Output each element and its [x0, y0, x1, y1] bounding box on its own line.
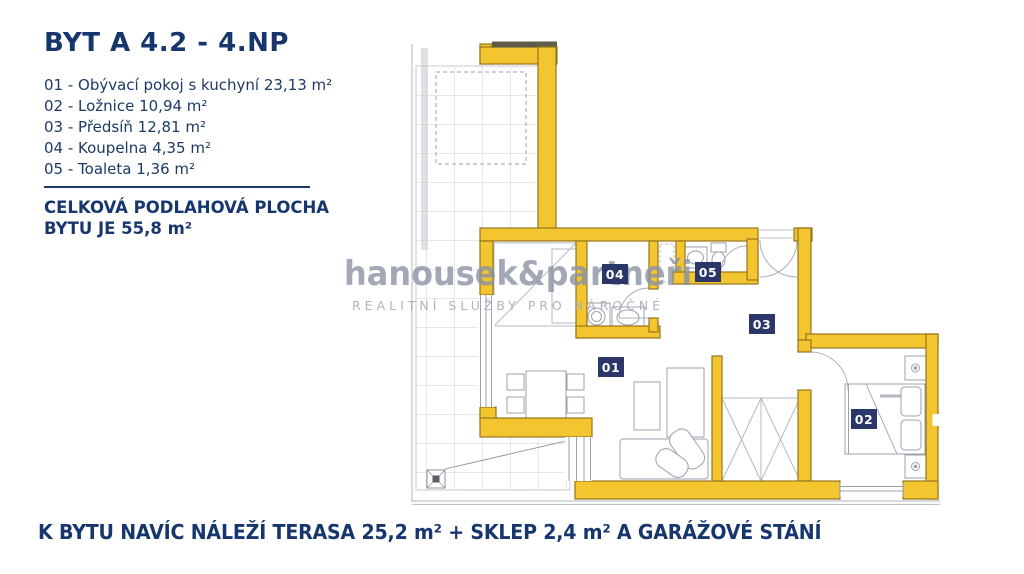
- legend-item-living-room: 01 - Obývací pokoj s kuchyní 23,13 m²: [44, 75, 332, 96]
- total-area-line1: CELKOVÁ PODLAHOVÁ PLOCHA: [44, 197, 329, 218]
- wall-notch: [933, 414, 940, 426]
- total-area-text: CELKOVÁ PODLAHOVÁ PLOCHA BYTU JE 55,8 m²: [44, 197, 329, 239]
- wall-hall-bedroom: [806, 334, 938, 348]
- floor-plan: [405, 38, 950, 505]
- wardrobe: [722, 398, 800, 481]
- entry-door-arc2: [760, 240, 797, 277]
- kitchen-block: [494, 243, 576, 326]
- dining-set: [507, 371, 584, 423]
- entry-door-arc: [760, 240, 797, 277]
- wall-bath-east-bottom: [649, 318, 658, 332]
- entry-door-frame: [758, 230, 794, 238]
- nightstand-top: [905, 356, 926, 380]
- window-french-door: [565, 437, 592, 481]
- window-west: [478, 295, 495, 407]
- wall-toilet-east: [747, 239, 758, 280]
- tv-cabinet: [634, 382, 660, 430]
- bedroom-door-arc: [810, 352, 848, 390]
- room-badge-01: 01: [598, 357, 624, 377]
- page-title: BYT A 4.2 - 4.NP: [44, 28, 289, 58]
- total-area-line2: BYTU JE 55,8 m²: [44, 218, 329, 239]
- room-badge-02: 02: [851, 409, 877, 429]
- legend-item-bedroom: 02 - Ložnice 10,94 m²: [44, 96, 332, 117]
- room-legend: 01 - Obývací pokoj s kuchyní 23,13 m² 02…: [44, 75, 332, 180]
- wall-hall-west: [712, 356, 722, 481]
- legend-item-toilet: 05 - Toaleta 1,36 m²: [44, 159, 332, 180]
- wall-east-upper: [798, 228, 811, 340]
- legend-item-bathroom: 04 - Koupelna 4,35 m²: [44, 138, 332, 159]
- wall-bedroom-west-top: [798, 340, 811, 352]
- footer-note: K BYTU NAVÍC NÁLEŽÍ TERASA 25,2 m² + SKL…: [38, 520, 821, 544]
- wall-bath-west: [576, 241, 587, 338]
- wall-bath-east-top: [649, 241, 658, 289]
- wall-bedroom-west-bottom: [798, 390, 811, 481]
- wall-top-main: [480, 228, 758, 241]
- legend-divider: [44, 186, 310, 188]
- wall-bottom-left: [575, 481, 840, 499]
- wall-bottom-right: [903, 481, 938, 499]
- room-badge-04: 04: [602, 264, 628, 284]
- cabinet: [667, 368, 704, 437]
- wall-west-upper: [480, 241, 493, 295]
- wall-bath-south: [576, 326, 660, 338]
- terrace-drain-icon: [427, 470, 445, 488]
- room-badge-03: 03: [749, 314, 775, 334]
- wall-terrace-east: [538, 47, 556, 232]
- window-bedroom: [840, 483, 903, 497]
- wall-step: [480, 418, 592, 437]
- room-badge-05: 05: [695, 262, 721, 282]
- installation-shaft: [660, 244, 674, 282]
- nightstand-bottom: [905, 455, 926, 478]
- sofa: [620, 425, 708, 480]
- legend-item-hall: 03 - Předsíň 12,81 m²: [44, 117, 332, 138]
